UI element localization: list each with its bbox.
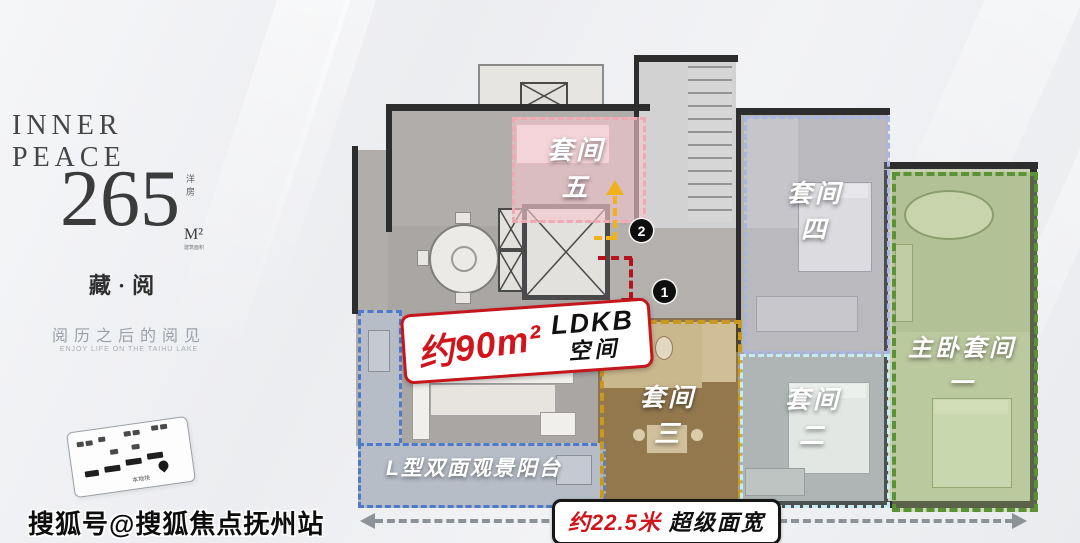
site-block-highlight bbox=[147, 452, 164, 460]
area-figure: 265 洋房 M² 建筑面积 bbox=[60, 160, 204, 251]
route2-arrow-segment bbox=[594, 236, 614, 240]
tagline-en: ENJOY LIFE ON THE TAIHU LAKE bbox=[44, 346, 214, 353]
suite5-label: 套间 五 bbox=[512, 117, 640, 217]
site-block bbox=[132, 430, 140, 436]
site-plate-card: 本地块 bbox=[66, 416, 196, 498]
balcony-planter bbox=[368, 330, 390, 372]
suite2-label-line1: 套间 bbox=[785, 380, 841, 416]
width-badge: 约22.5米 超级面宽 bbox=[552, 499, 781, 543]
suite2-label: 套间 二 bbox=[740, 368, 886, 464]
site-block bbox=[76, 441, 84, 447]
dining-chair bbox=[455, 212, 471, 224]
site-block bbox=[151, 425, 159, 431]
area-unit: M² bbox=[184, 226, 203, 244]
site-block bbox=[85, 440, 93, 446]
ldk-area-value: 约90m² bbox=[414, 309, 545, 378]
duct-shaft bbox=[498, 250, 524, 292]
ldk-label-line1: LDKB bbox=[550, 307, 635, 340]
dimension-arrowhead-right bbox=[1012, 513, 1027, 529]
site-block-highlight bbox=[104, 465, 121, 473]
site-block-highlight bbox=[85, 470, 100, 478]
suite2-label-line2: 二 bbox=[799, 416, 827, 452]
area-value: 265 bbox=[60, 160, 180, 238]
balcony-label: L型双面观景阳台 bbox=[386, 452, 562, 482]
route1-arrow-segment bbox=[629, 258, 633, 300]
watermark: 搜狐号@搜狐焦点抚州站 bbox=[28, 504, 324, 541]
site-block bbox=[160, 424, 168, 430]
dining-chair bbox=[455, 292, 471, 304]
sofa-arm bbox=[412, 382, 430, 440]
site-block bbox=[123, 431, 131, 437]
dining-chair bbox=[417, 250, 429, 266]
location-pin-icon bbox=[157, 459, 171, 473]
coffee-table bbox=[540, 412, 576, 436]
suite3-label-line1: 套间 bbox=[640, 378, 696, 414]
route-marker-2: 2 bbox=[630, 219, 653, 242]
site-block-highlight bbox=[125, 458, 142, 466]
suite3-label-line2: 三 bbox=[654, 414, 682, 450]
suite4-label-line1: 套间 bbox=[787, 174, 843, 210]
wall bbox=[352, 146, 358, 314]
suite5-label-line2: 五 bbox=[561, 167, 590, 204]
master-label-line2: 一 bbox=[949, 363, 976, 398]
route2-arrowhead-up bbox=[606, 180, 624, 195]
wall bbox=[386, 108, 392, 232]
master-suite-label: 主卧套间 一 bbox=[888, 330, 1036, 396]
route-marker-1: 1 bbox=[653, 280, 676, 303]
site-block bbox=[131, 444, 140, 450]
master-label-line1: 主卧套间 bbox=[908, 328, 1016, 363]
area-type-label: 洋房 bbox=[184, 174, 197, 200]
sofa-seat bbox=[430, 384, 556, 416]
dining-table-center bbox=[451, 246, 477, 272]
width-label: 超级面宽 bbox=[669, 505, 765, 537]
wall bbox=[386, 104, 650, 111]
wall bbox=[884, 162, 1038, 169]
product-name: 藏·阅 bbox=[70, 268, 180, 300]
area-note: 建筑面积 bbox=[184, 244, 204, 251]
route1-arrow-segment bbox=[598, 256, 632, 260]
site-card-note: 本地块 bbox=[132, 473, 151, 484]
suite4-label: 套间 四 bbox=[744, 150, 886, 270]
site-block bbox=[98, 436, 106, 442]
suite3-label: 套间 三 bbox=[600, 366, 736, 462]
wall bbox=[736, 108, 890, 115]
ldk-label-line2: 空间 bbox=[568, 338, 621, 364]
width-value: 约22.5米 bbox=[568, 505, 661, 537]
site-block bbox=[110, 449, 119, 455]
poster-canvas: INNER PEACE 265 洋房 M² 建筑面积 藏·阅 阅历之后的阅见 E… bbox=[0, 0, 1080, 543]
suite5-label-line1: 套间 bbox=[547, 130, 605, 167]
wall bbox=[736, 112, 741, 352]
wall bbox=[634, 55, 738, 62]
route2-arrow-segment bbox=[613, 196, 617, 240]
tagline-cn: 阅历之后的阅见 bbox=[44, 322, 214, 346]
suite4-label-line2: 四 bbox=[801, 210, 829, 246]
dimension-arrowhead-left bbox=[360, 513, 375, 529]
stair-treads bbox=[688, 66, 732, 222]
